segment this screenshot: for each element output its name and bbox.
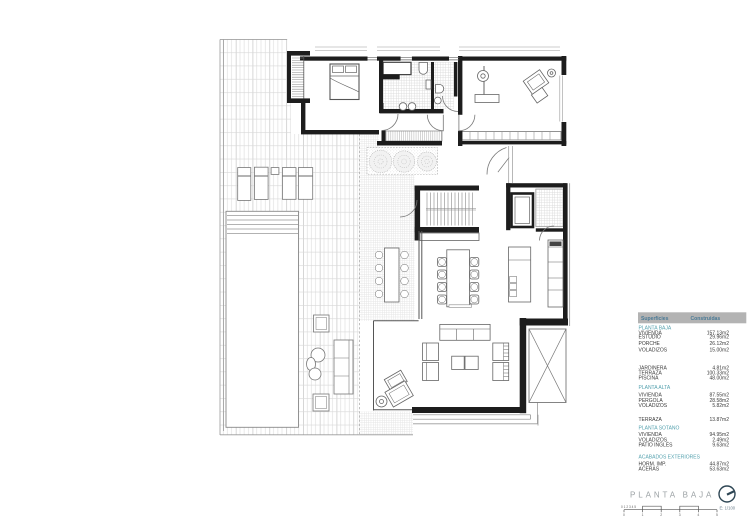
svg-text:3: 3 <box>679 513 681 517</box>
svg-text:29.96m2: 29.96m2 <box>710 335 730 341</box>
svg-text:PISCINA: PISCINA <box>639 376 660 382</box>
svg-text:5.82m2: 5.82m2 <box>712 403 729 409</box>
svg-text:5: 5 <box>716 513 718 517</box>
svg-text:VOLADIZOS: VOLADIZOS <box>639 403 668 409</box>
svg-text:ESTUDIO: ESTUDIO <box>639 335 661 341</box>
svg-text:1: 1 <box>642 513 644 517</box>
svg-text:TERRAZA: TERRAZA <box>639 417 663 423</box>
svg-text:PLANTA ALTA: PLANTA ALTA <box>639 385 671 391</box>
svg-text:26.12m2: 26.12m2 <box>710 341 730 347</box>
svg-text:0 1 2 3 4 5: 0 1 2 3 4 5 <box>621 505 636 509</box>
svg-text:Superficies: Superficies <box>641 316 669 322</box>
svg-text:2: 2 <box>660 513 662 517</box>
svg-text:48.00m2: 48.00m2 <box>710 376 730 382</box>
svg-text:4: 4 <box>697 513 699 517</box>
svg-text:ACERAS: ACERAS <box>639 466 660 472</box>
svg-text:PLANTA SOTANO: PLANTA SOTANO <box>639 425 680 431</box>
svg-text:53.63m2: 53.63m2 <box>710 466 730 472</box>
svg-text:PATIO INGLÉS: PATIO INGLÉS <box>639 442 674 449</box>
svg-text:0: 0 <box>623 513 625 517</box>
svg-text:ACABADOS EXTERIORES: ACABADOS EXTERIORES <box>639 454 701 460</box>
svg-text:Construidas: Construidas <box>691 316 721 322</box>
svg-text:PORCHE: PORCHE <box>639 341 661 347</box>
svg-text:E: 1/100: E: 1/100 <box>720 505 736 510</box>
svg-text:VOLADIZOS: VOLADIZOS <box>639 348 668 354</box>
svg-text:9.63m2: 9.63m2 <box>712 443 729 449</box>
svg-text:PLANTA BAJA: PLANTA BAJA <box>630 491 714 500</box>
svg-text:15.00m2: 15.00m2 <box>710 348 730 354</box>
svg-text:13.87m2: 13.87m2 <box>710 417 730 423</box>
